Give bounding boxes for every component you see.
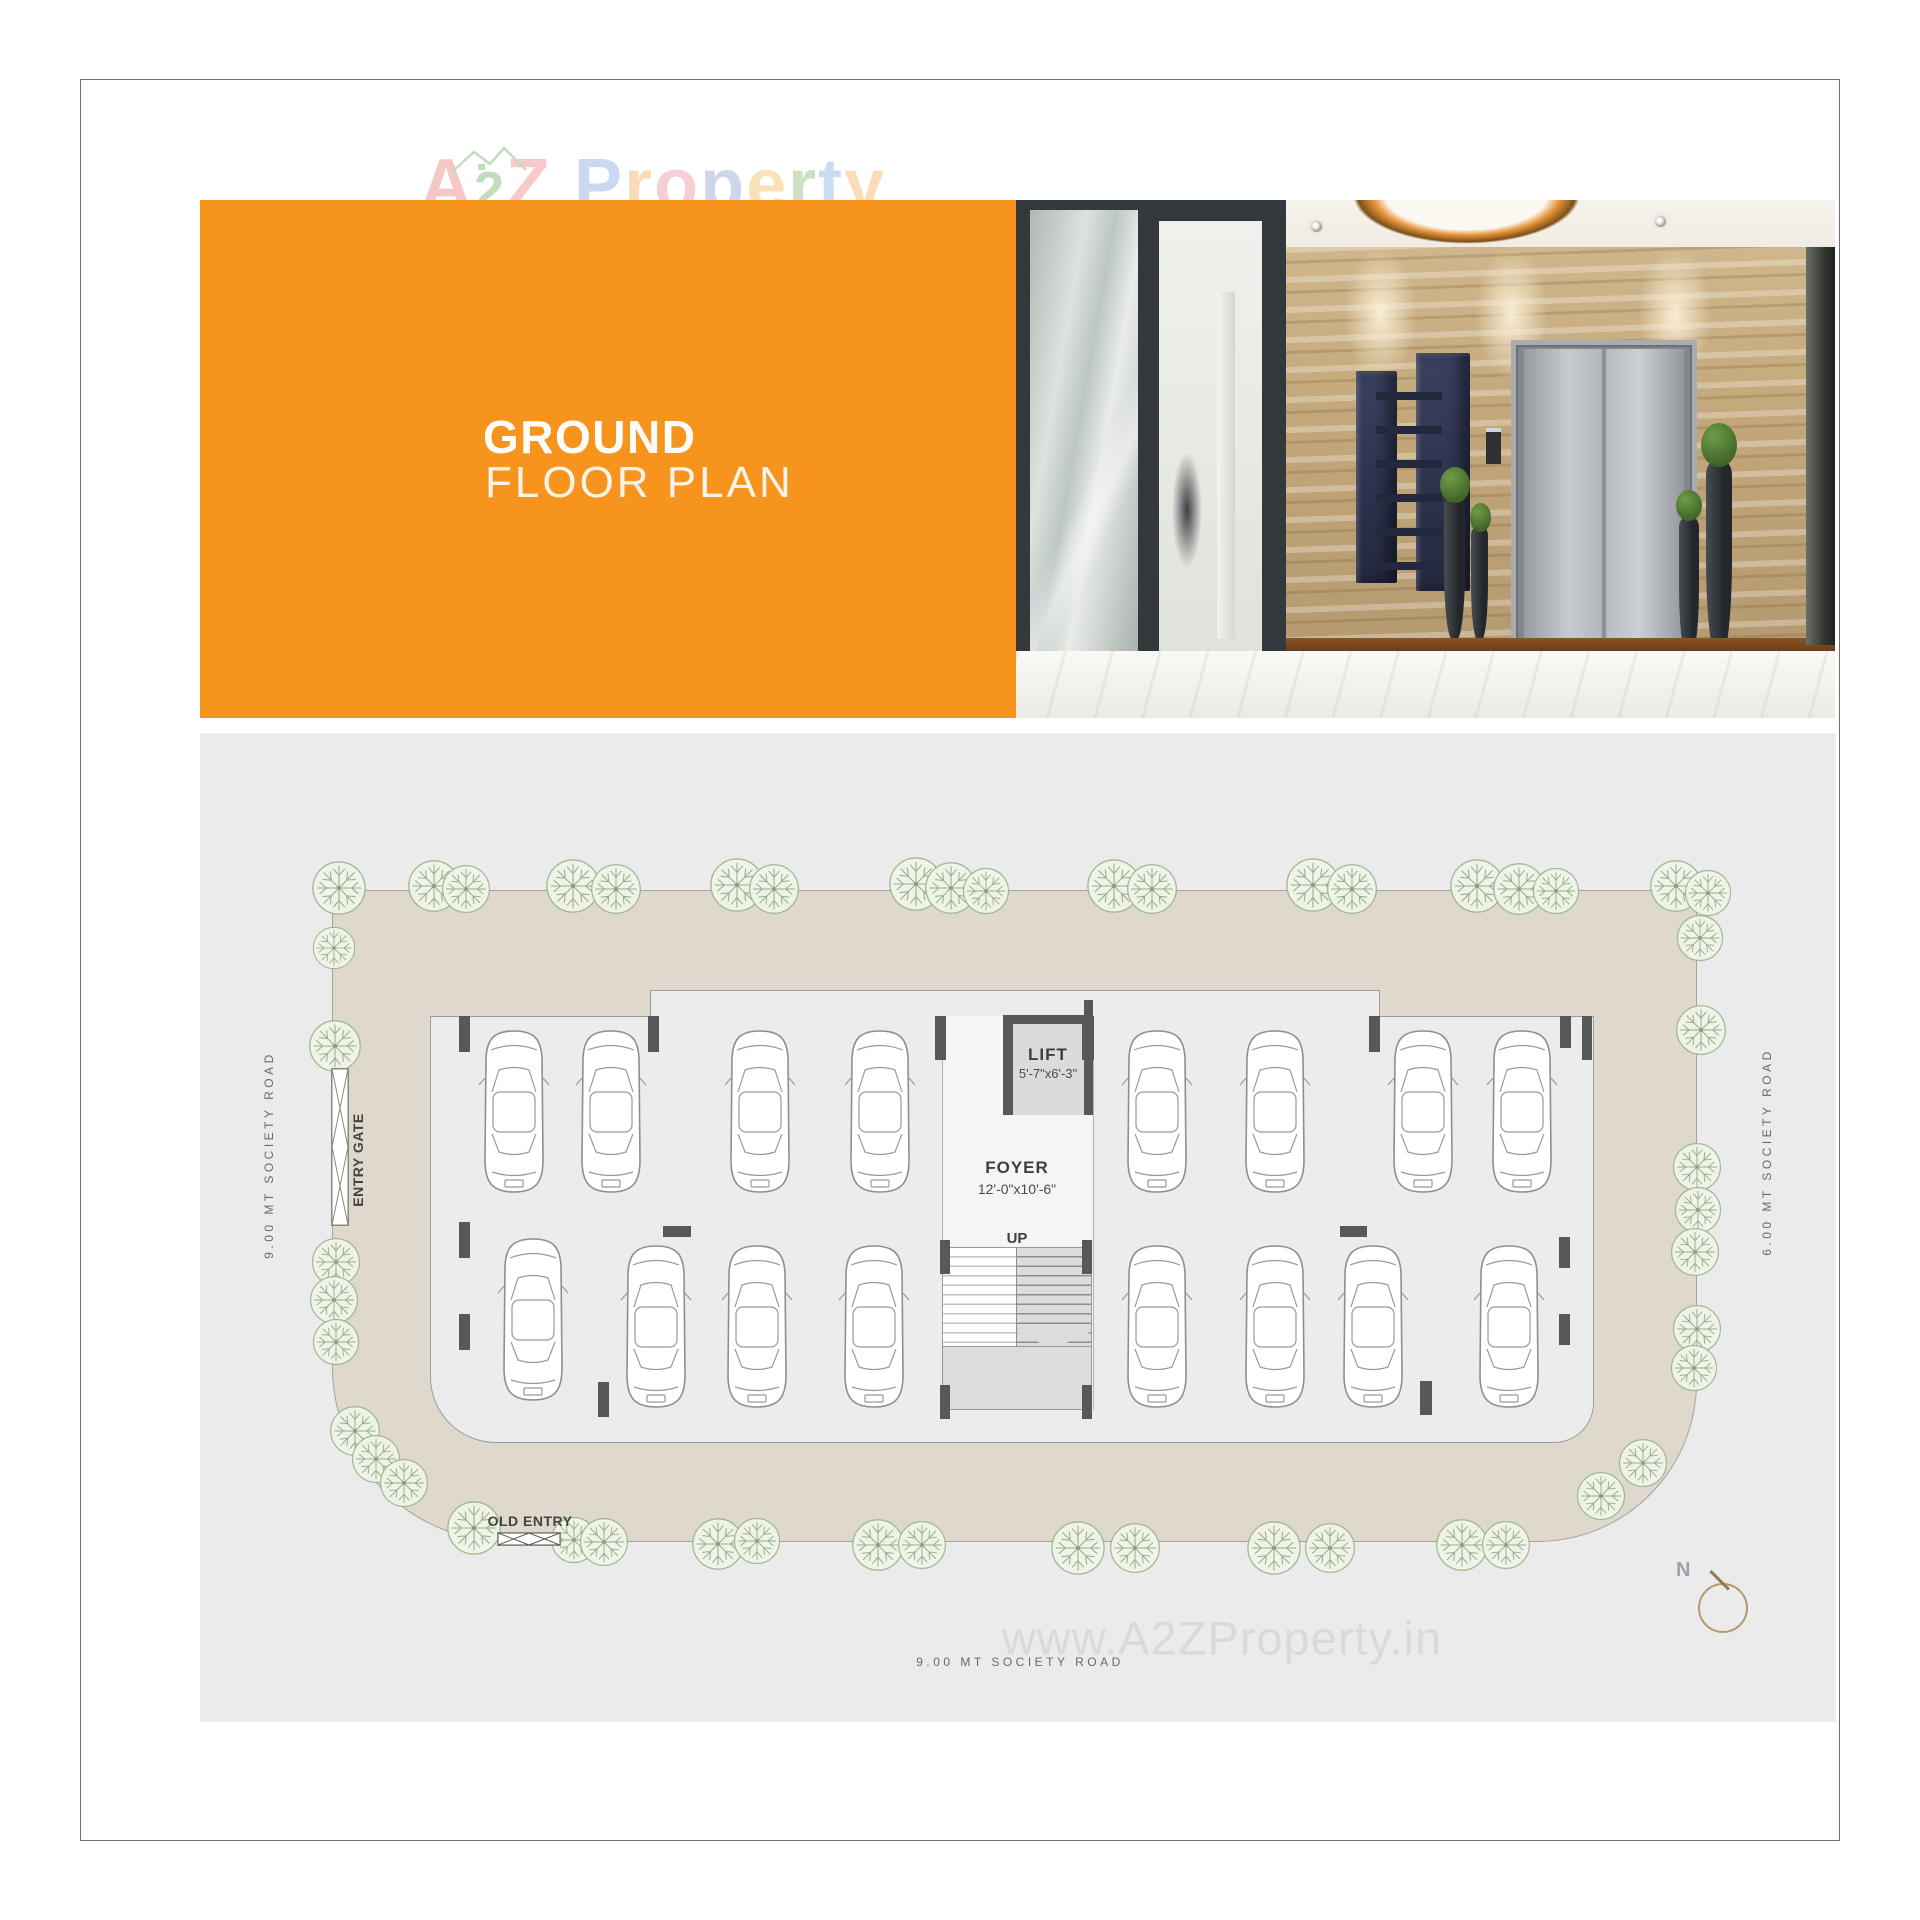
car-icon — [478, 1028, 550, 1195]
house-icon — [448, 144, 528, 174]
wall-segment — [1559, 1237, 1570, 1268]
tree-icon — [1325, 862, 1379, 916]
wall-segment — [459, 1222, 470, 1258]
wall-segment — [1082, 1385, 1092, 1419]
tree-icon — [378, 1457, 430, 1509]
tree-icon — [311, 925, 357, 971]
plant-vase — [1706, 459, 1732, 656]
lift-shaft: LIFT 5'-7"x6'-3" — [1003, 1000, 1093, 1115]
wall-segment — [935, 1016, 946, 1060]
tree-icon — [1049, 1519, 1107, 1577]
floor-plan: LIFT 5'-7"x6'-3" FOYER 12'-0"x10'-6" UP … — [200, 733, 1836, 1722]
wall-segment — [1369, 1016, 1380, 1052]
tree-icon — [1125, 862, 1179, 916]
plant-foliage — [1470, 503, 1491, 531]
marble-floor — [1016, 651, 1835, 718]
car-icon — [497, 1236, 569, 1403]
glass-wall — [1016, 200, 1286, 718]
tree-icon — [896, 1519, 948, 1571]
plant-vase — [1679, 516, 1699, 656]
elevator-doors — [1524, 349, 1685, 651]
car-icon — [1239, 1028, 1311, 1195]
tree-icon — [311, 1317, 361, 1367]
car-icon — [1239, 1243, 1311, 1410]
title-block: GROUND FLOOR PLAN — [200, 200, 1016, 718]
tree-icon — [307, 1018, 363, 1074]
entry-gate-label: ENTRY GATE — [350, 1113, 366, 1206]
car-icon — [721, 1243, 793, 1410]
plant-foliage — [1440, 467, 1469, 503]
car-icon — [1473, 1243, 1545, 1410]
car-icon — [1121, 1028, 1193, 1195]
lift-wall — [1003, 1015, 1093, 1024]
wall-segment — [459, 1314, 470, 1350]
car-icon — [620, 1243, 692, 1410]
spotlight-icon — [1311, 221, 1322, 232]
car-icon — [838, 1243, 910, 1410]
car-icon — [724, 1028, 796, 1195]
plant-vase — [1444, 495, 1465, 640]
stair-flight — [1016, 1248, 1091, 1346]
tree-icon — [732, 1516, 782, 1566]
glass-pane — [1030, 210, 1138, 687]
elevator — [1511, 340, 1698, 661]
brochure-page: A2ZProperty GROUND FLOOR PLAN — [0, 0, 1920, 1920]
lift-wall — [1003, 1015, 1013, 1115]
car-icon — [1121, 1243, 1193, 1410]
old-entry-gate-icon — [497, 1532, 561, 1546]
exterior-car-silhouette — [1172, 452, 1203, 568]
wall-segment — [940, 1385, 950, 1419]
road-label-left: 9.00 MT SOCIETY ROAD — [262, 1051, 276, 1259]
elevator-call-panel — [1486, 428, 1501, 464]
wall-segment — [1559, 1314, 1570, 1345]
wall-segment — [1582, 1016, 1592, 1060]
foyer-label: FOYER — [942, 1158, 1092, 1178]
tree-icon — [747, 862, 801, 916]
wall-segment — [1082, 1016, 1094, 1060]
tree-icon — [578, 1516, 630, 1568]
lift-label: LIFT — [1003, 1045, 1093, 1065]
stair-landing — [943, 1346, 1091, 1409]
tree-icon — [440, 863, 492, 915]
wall-segment — [663, 1226, 691, 1237]
tree-icon — [1674, 1003, 1728, 1057]
page-title: GROUND — [483, 410, 696, 464]
plant-vase — [1471, 526, 1487, 640]
tree-icon — [310, 859, 368, 917]
entry-gate-icon — [331, 1068, 349, 1226]
wall-segment — [1082, 1240, 1092, 1274]
wall-segment — [459, 1016, 470, 1052]
tree-icon — [1303, 1521, 1357, 1575]
wall-segment — [598, 1382, 609, 1417]
stairs-up-label: UP — [942, 1230, 1092, 1247]
tree-icon — [1617, 1437, 1669, 1489]
tree-icon — [1245, 1519, 1303, 1577]
tree-icon — [1669, 1226, 1721, 1278]
tree-icon — [1531, 866, 1581, 916]
stair-flight-dashed — [943, 1248, 1016, 1346]
staircase — [942, 1247, 1092, 1410]
wall-segment — [648, 1016, 659, 1052]
road-label-right: 6.00 MT SOCIETY ROAD — [1760, 1048, 1774, 1256]
wall-segment — [1420, 1381, 1432, 1415]
plant-foliage — [1701, 423, 1737, 467]
car-icon — [1337, 1243, 1409, 1410]
foyer-dimension: 12'-0"x10'-6" — [942, 1181, 1092, 1197]
north-circle — [1698, 1583, 1748, 1633]
north-letter: N — [1676, 1559, 1690, 1582]
tree-icon — [961, 866, 1011, 916]
tree-icon — [1108, 1521, 1162, 1575]
wall-segment — [940, 1240, 950, 1274]
wall-segment — [1560, 1016, 1571, 1048]
glass-pane — [1159, 221, 1262, 666]
spotlight-icon — [1655, 216, 1666, 227]
wall-segment — [1340, 1226, 1367, 1237]
tree-icon — [1683, 868, 1733, 918]
tree-icon — [589, 862, 643, 916]
page-subtitle: FLOOR PLAN — [485, 458, 794, 508]
side-glass-panel — [1806, 247, 1835, 646]
car-icon — [1387, 1028, 1459, 1195]
car-icon — [844, 1028, 916, 1195]
site-watermark: www.A2ZProperty.in — [1002, 1611, 1442, 1666]
car-icon — [575, 1028, 647, 1195]
tree-icon — [1669, 1343, 1719, 1393]
car-icon — [1486, 1028, 1558, 1195]
tree-icon — [1675, 913, 1725, 963]
old-entry-label: OLD ENTRY — [488, 1513, 573, 1529]
tree-icon — [1480, 1519, 1532, 1571]
lift-dimension: 5'-7"x6'-3" — [1003, 1066, 1093, 1081]
exterior-column — [1217, 292, 1235, 639]
wall-light-wash — [1344, 247, 1418, 382]
lobby-photo — [1016, 200, 1835, 718]
mailbox-rails — [1376, 366, 1442, 594]
